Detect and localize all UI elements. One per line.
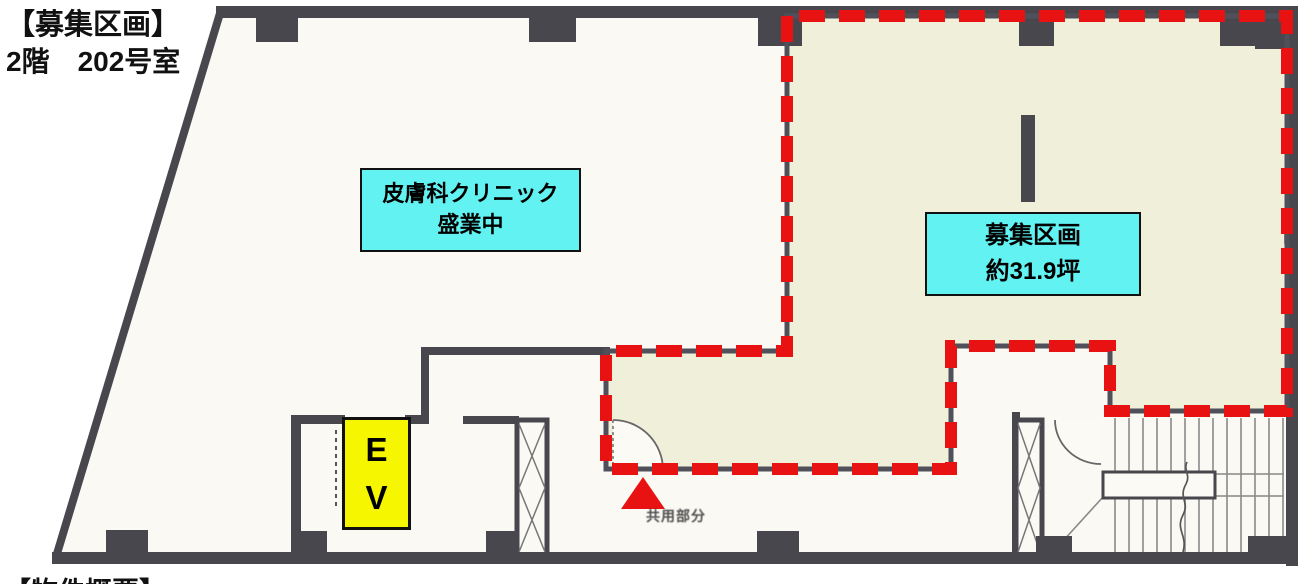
bottom-caption: 【物件概要】 (4, 570, 166, 584)
elevator-label: E V (342, 417, 411, 530)
clinic-status: 盛業中 (437, 210, 503, 241)
duct-shaft (517, 420, 547, 556)
interior-column (1021, 115, 1035, 202)
page-title-line2: 2階 202号室 (6, 44, 180, 81)
stair-landing (1103, 472, 1215, 498)
clinic-name: 皮膚科クリニック (382, 179, 558, 210)
entrance-note: 共用部分 (646, 506, 736, 526)
vacancy-label: 募集区画 約31.9坪 (925, 212, 1141, 296)
floor-plan-page: 【募集区画】 2階 202号室 皮膚科クリニック 盛業中 募集区画 約31.9坪… (0, 0, 1303, 584)
elevator-letter-e: E (365, 426, 387, 474)
vacancy-area: 約31.9坪 (986, 254, 1081, 290)
elevator-letter-v: V (365, 474, 387, 522)
page-title-line1: 【募集区画】 (6, 6, 180, 44)
page-title: 【募集区画】 2階 202号室 (6, 6, 180, 81)
clinic-tenant-label: 皮膚科クリニック 盛業中 (360, 168, 581, 252)
vacancy-title: 募集区画 (985, 218, 1081, 254)
